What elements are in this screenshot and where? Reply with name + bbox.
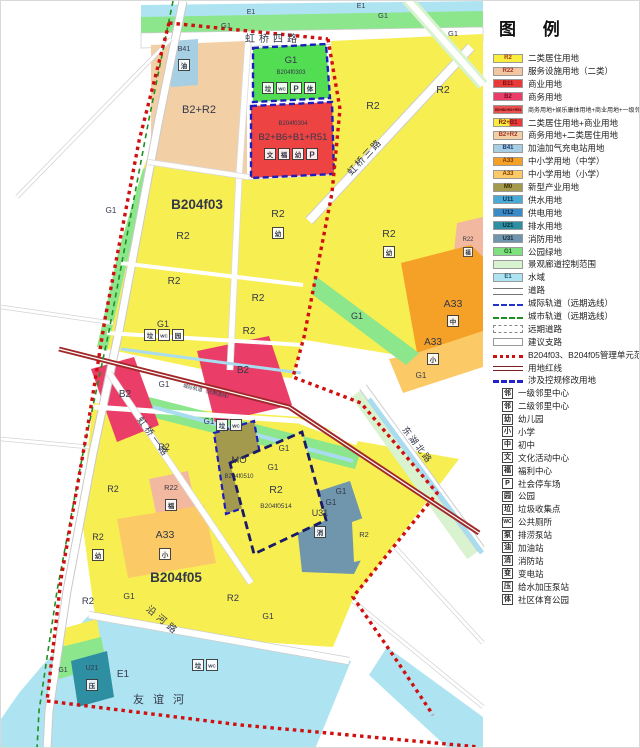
wc-icon: WC [160,333,168,338]
legend-row: B41加油加气充电站用地 [493,142,639,154]
kindergarten-icon: 幼 [95,551,102,560]
legend-row: 垃垃圾收集点 [493,503,639,515]
legend-row: 建议支路 [493,336,639,348]
legend-swatch: A33 [493,170,523,179]
legend-label: 变电站 [518,568,544,580]
kindergarten-icon: 幼 [386,248,393,257]
legend-row: B2+R2商务用地+二类居住用地 [493,129,639,141]
legend-label: 排涝泵站 [518,529,552,541]
legend-swatch: R22 [493,67,523,76]
wc-icon: WC [278,86,286,91]
svg-text:G1: G1 [416,371,427,380]
legend-panel: 图 例 R2二类居住用地R22服务设施用地（二类）B11商业用地B2商务用地B2… [487,1,640,748]
legend-row: 园公园 [493,490,639,502]
primary-school-icon: 小 [429,355,437,364]
svg-text:G1: G1 [123,591,135,601]
svg-text:R2: R2 [92,532,104,542]
legend-row: 泵排涝泵站 [493,529,639,541]
legend-row: R2+B1二类居住用地+商业用地 [493,116,639,128]
legend-label: 城市轨道（远期选线） [528,310,613,322]
svg-text:G1: G1 [221,21,231,30]
legend-swatch: B2 [493,92,523,101]
svg-text:G1: G1 [326,498,337,507]
legend-row: B204f03、B204f05管理单元范围 [493,348,639,360]
legend-label: 景观廊道控制范围 [528,258,596,270]
legend-label: 建议支路 [528,336,562,348]
svg-text:G1: G1 [268,463,279,472]
park-icon: 园 [175,331,182,340]
kindergarten-icon: 幼 [275,229,282,238]
legend-lines: 道路城际轨道（远期选线）城市轨道（远期选线）远期道路建议支路B204f03、B2… [493,284,639,387]
legend-row: 福福利中心 [493,465,639,477]
legend-label: 排水用地 [528,220,562,232]
trash-icon: 垃 [219,421,226,430]
svg-text:R2: R2 [269,484,283,496]
svg-text:R2: R2 [366,100,380,112]
trash-icon: 垃 [195,661,202,670]
legend-swatch: R2+B1 [493,118,523,127]
legend-row: M0新型产业用地 [493,181,639,193]
legend-row: 小小学 [493,426,639,438]
svg-text:G1: G1 [448,29,458,38]
gas-station-icon: 油 [181,61,188,70]
svg-text:B2: B2 [237,365,250,376]
legend-swatch: U31 [493,234,523,243]
legend-swatch: G1 [493,247,523,256]
legend-label: 文化活动中心 [518,452,569,464]
legend-row: 中初中 [493,439,639,451]
svg-text:R2: R2 [168,276,181,287]
legend-label: 一级邻里中心 [518,387,569,399]
一级邻里中心-icon: 邻 [502,388,513,399]
排涝泵站-icon: 泵 [502,530,513,541]
legend-line-swatch-redline [493,366,523,371]
legend-row: G1公园绿地 [493,245,639,257]
legend-row: 景观廊道控制范围 [493,258,639,270]
legend-label: 幼儿园 [518,413,544,425]
legend-row: WC公共厕所 [493,516,639,528]
legend-row: 变变电站 [493,568,639,580]
legend-title: 图 例 [499,15,639,40]
parking-icon: P [293,84,299,93]
svg-text:R2: R2 [82,596,94,607]
legend-row: E1水域 [493,271,639,283]
legend-row: U11供水用地 [493,194,639,206]
legend-label: 公园 [518,490,535,502]
svg-text:G1: G1 [106,206,117,215]
legend-row: 城际轨道（远期选线） [493,297,639,309]
legend-label: 初中 [518,439,535,451]
primary-school-icon: 小 [161,550,169,559]
文化活动中心-icon: 文 [502,452,513,463]
svg-text:G1: G1 [279,444,290,453]
svg-text:A33: A33 [424,337,442,348]
fire-station-icon: 消 [317,528,324,537]
legend-row: 体社区体育公园 [493,593,639,605]
middle-school-icon: 中 [450,317,457,326]
trash-icon: 垃 [147,331,154,340]
svg-text:G1: G1 [204,417,215,426]
legend-row: A33中小学用地（小学） [493,168,639,180]
legend-swatches: R2二类居住用地R22服务设施用地（二类）B11商业用地B2商务用地B2+B6+… [493,52,639,283]
legend-swatch: B2+R2 [493,131,523,140]
welfare-icon: 福 [167,501,175,510]
legend-swatch: M0 [493,183,523,192]
legend-label: 供电用地 [528,207,562,219]
legend-label: 涉及控规修改用地 [528,374,596,386]
unit-label-north: B204f03 [171,197,223,212]
legend-label: 水域 [528,271,545,283]
sports-park-icon: 体 [307,84,314,93]
parcel-id-0510: B204f0510 [224,474,254,480]
svg-text:R2: R2 [243,326,256,337]
svg-text:A33: A33 [444,298,463,310]
legend-swatch: B41 [493,144,523,153]
zoning-map: E1 E1 G1 G1 G1 虹桥四路 虹桥三路 虹桥一路 东湖北路 沿河路 城… [1,1,487,748]
wc-icon: WC [208,663,216,668]
svg-text:U21: U21 [86,665,99,672]
svg-text:R2: R2 [227,593,239,604]
legend-label: B204f03、B204f05管理单元范围 [528,349,640,361]
legend-label: 中小学用地（中学） [528,155,605,167]
legend-label: 消防站 [518,555,544,567]
legend-row: 城市轨道（远期选线） [493,310,639,322]
welfare-icon: 福 [280,150,288,159]
legend-swatch: B2+B6+B1+R51 [493,105,523,114]
legend-swatch: U11 [493,195,523,204]
公共厕所-icon: WC [502,517,513,528]
svg-text:B2+B6+B1+R51: B2+B6+B1+R51 [259,132,328,143]
planning-map-page: E1 E1 G1 G1 G1 虹桥四路 虹桥三路 虹桥一路 东湖北路 沿河路 城… [0,0,640,748]
legend-swatch: U12 [493,208,523,217]
社会停车场-icon: P [502,478,513,489]
加油站-icon: 油 [502,542,513,553]
parking-icon: P [309,150,315,159]
legend-row: U12供电用地 [493,207,639,219]
legend-row: B2商务用地 [493,91,639,103]
svg-text:R2: R2 [436,84,450,96]
幼儿园-icon: 幼 [502,414,513,425]
消防站-icon: 消 [502,555,513,566]
legend-label: 新型产业用地 [528,181,579,193]
legend-row: 邻一级邻里中心 [493,387,639,399]
zone-u21-pump [71,651,114,707]
svg-text:G1: G1 [351,311,363,321]
二级邻里中心-icon: 邻 [502,401,513,412]
legend-swatch: B11 [493,79,523,88]
svg-text:R2: R2 [176,230,190,242]
svg-text:G1: G1 [262,611,274,621]
legend-row: U31消防用地 [493,232,639,244]
svg-text:R2: R2 [252,293,265,304]
svg-text:B41: B41 [178,46,191,53]
svg-text:A33: A33 [156,529,175,541]
给水加压泵站-icon: 压 [502,581,513,592]
legend-label: 用地红线 [528,362,562,374]
初中-icon: 中 [502,439,513,450]
legend-line-swatch-unit-red [493,355,523,358]
parcel-id-0304: B204f0304 [278,121,308,127]
svg-text:G1: G1 [157,319,169,329]
svg-text:R2: R2 [158,442,170,452]
社区体育公园-icon: 体 [502,594,513,605]
svg-text:G1: G1 [159,380,170,389]
svg-text:R2: R2 [382,228,396,240]
svg-text:U31: U31 [312,508,329,518]
legend-row: 油加油站 [493,542,639,554]
parcel-id-0514: B204f0514 [260,503,292,510]
legend-label: 小学 [518,426,535,438]
福利中心-icon: 福 [502,465,513,476]
legend-line-swatch-road-suggest [493,338,523,346]
legend-label: 公共厕所 [518,516,552,528]
公园-icon: 园 [502,491,513,502]
svg-text:MO: MO [231,455,246,466]
legend-swatch [493,260,523,269]
变电站-icon: 变 [502,568,513,579]
parcel-id-0303: B204f0303 [276,70,306,76]
legend-row: R22服务设施用地（二类） [493,65,639,77]
trash-icon: 垃 [265,84,272,93]
legend-label: 商务用地 [528,91,562,103]
legend-line-swatch-road-future [493,325,523,333]
legend-row: 幼幼儿园 [493,413,639,425]
legend-label: 加油站 [518,542,544,554]
legend-label: 社区体育公园 [518,594,569,606]
legend-row: P社会停车场 [493,477,639,489]
legend-label: 中小学用地（小学） [528,168,605,180]
legend-row: 文文化活动中心 [493,452,639,464]
river-label: 友谊河 [133,692,193,706]
road-label-hongqiao4: 虹桥四路 [245,32,301,45]
legend-label: 社会停车场 [518,478,561,490]
legend-label: 商务用地+娱乐康体用地+商业用地+一级邻里中心用地 [528,105,640,114]
svg-text:E1: E1 [357,3,366,10]
legend-line-swatch-rail-green [493,317,523,319]
legend-row: 压给水加压泵站 [493,581,639,593]
unit-label-south: B204f05 [150,570,202,585]
legend-row: 消消防站 [493,555,639,567]
svg-text:R22: R22 [164,483,178,492]
legend-icons: 邻一级邻里中心邻二级邻里中心幼幼儿园小小学中初中文文化活动中心福福利中心P社会停… [493,387,639,606]
legend-label: 二类居住用地+商业用地 [528,117,618,129]
legend-swatch: E1 [493,273,523,282]
legend-line-swatch-rail-blue [493,304,523,306]
legend-row: B2+B6+B1+R51商务用地+娱乐康体用地+商业用地+一级邻里中心用地 [493,104,639,116]
legend-swatch: A33 [493,157,523,166]
legend-label: 给水加压泵站 [518,581,569,593]
legend-row: B11商业用地 [493,78,639,90]
svg-text:E1: E1 [247,9,256,16]
legend-label: 公园绿地 [528,246,562,258]
legend-row: 道路 [493,284,639,296]
map-canvas: E1 E1 G1 G1 G1 虹桥四路 虹桥三路 虹桥一路 东湖北路 沿河路 城… [1,1,487,748]
svg-text:G1: G1 [336,487,347,496]
legend-row: A33中小学用地（中学） [493,155,639,167]
小学-icon: 小 [502,426,513,437]
legend-row: R2二类居住用地 [493,52,639,64]
legend-label: 服务设施用地（二类） [528,65,613,77]
water-pump-icon: 压 [89,681,96,690]
legend-label: 商务用地+二类居住用地 [528,129,618,141]
legend-label: 远期道路 [528,323,562,335]
legend-row: 涉及控规修改用地 [493,374,639,386]
svg-text:G1: G1 [285,55,298,66]
垃圾收集点-icon: 垃 [502,504,513,515]
culture-icon: 文 [266,150,274,159]
svg-text:R2: R2 [359,530,369,539]
svg-text:B2+R2: B2+R2 [182,104,216,116]
legend-swatch: U21 [493,221,523,230]
legend-row: 用地红线 [493,361,639,373]
kindergarten-icon: 幼 [295,150,302,159]
legend-swatch: R2 [493,54,523,63]
svg-text:B2: B2 [119,389,132,400]
legend-line-swatch-road [493,288,523,295]
legend-label: 消防用地 [528,233,562,245]
legend-label: 商业用地 [528,78,562,90]
svg-text:E1: E1 [117,669,130,680]
legend-label: 福利中心 [518,465,552,477]
legend-label: 道路 [528,284,545,296]
svg-text:R22: R22 [462,237,474,243]
svg-text:R2: R2 [107,484,119,494]
legend-label: 供水用地 [528,194,562,206]
legend-row: 邻二级邻里中心 [493,400,639,412]
wc-icon: WC [232,423,240,428]
legend-label: 城际轨道（远期选线） [528,297,613,309]
welfare-icon: 福 [464,249,471,257]
svg-text:G1: G1 [58,667,67,674]
legend-label: 加油加气充电站用地 [528,142,605,154]
legend-row: U21排水用地 [493,220,639,232]
legend-row: 远期道路 [493,323,639,335]
legend-line-swatch-mod-blue [493,380,523,383]
svg-text:R2: R2 [271,208,285,220]
legend-label: 垃圾收集点 [518,503,561,515]
svg-text:G1: G1 [378,11,388,20]
legend-label: 二类居住用地 [528,52,579,64]
legend-label: 二级邻里中心 [518,400,569,412]
